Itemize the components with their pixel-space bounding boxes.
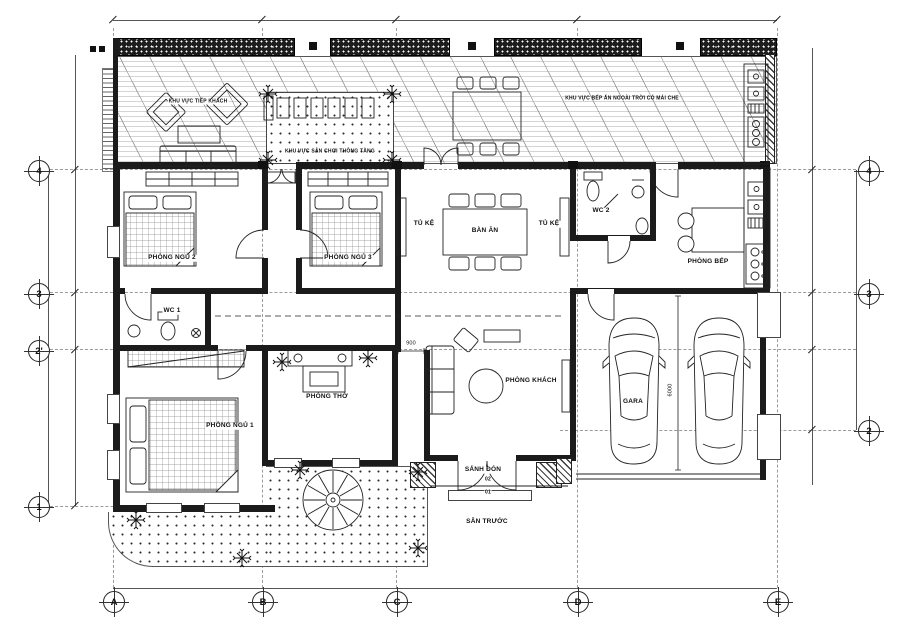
floor-plan: PHÒNG NGỦ 2 PHÒNG NGỦ 3 WC 2 PHÒNG BẾP T… [0, 0, 900, 620]
label-shelf-left: TỦ KỆ [413, 221, 436, 228]
label-outdoor-bbq: KHU VỰC BẾP ĂN NGOÀI TRỜI CÓ MÁI CHE [564, 97, 680, 102]
grid-bubble-right-2: 2 [858, 420, 880, 442]
grid-bubble-right-4: 4 [858, 160, 880, 182]
grid-bubble-col-d: D [567, 591, 589, 613]
grid-bubble-left-2p: 2' [28, 340, 50, 362]
dim-label-6000: 6000 [668, 382, 674, 397]
label-entry-porch: SẢNH ĐÓN [464, 467, 502, 474]
grid-bubble-right-3: 3 [858, 283, 880, 305]
room-label-wc1: WC 1 [162, 308, 181, 315]
step-label-01: 01 [484, 491, 492, 496]
room-label-wc2: WC 2 [591, 208, 610, 215]
room-label-bedroom1: PHÒNG NGỦ 1 [205, 423, 255, 430]
grid-bubble-col-e: E [767, 591, 789, 613]
room-label-kitchen: PHÒNG BẾP [687, 259, 730, 266]
step-label-02: 02 [484, 478, 492, 483]
grid-bubble-col-b: B [252, 591, 274, 613]
room-label-bedroom2: PHÒNG NGỦ 2 [147, 255, 197, 262]
grid-bubble-left-1: 1 [28, 496, 50, 518]
room-label-worship: PHÒNG THỜ [305, 394, 349, 401]
dim-label-900: 900 [405, 341, 417, 347]
label-dining-table: BÀN ĂN [471, 228, 499, 235]
room-label-garage: GARA [622, 399, 644, 406]
grid-bubble-col-c: C [386, 591, 408, 613]
grid-bubble-left-3: 3 [28, 283, 50, 305]
room-label-living: PHÒNG KHÁCH [504, 378, 557, 385]
grid-bubble-left-4: 4 [28, 160, 50, 182]
label-shelf-right: TỦ KỆ [538, 221, 561, 228]
grid-bubble-col-a: A [103, 591, 125, 613]
furniture-linework [0, 0, 900, 620]
label-outdoor-lounge: KHU VỰC TIẾP KHÁCH [168, 100, 229, 105]
label-void-play-area: KHU VỰC SÂN CHƠI THÔNG TẦNG [284, 150, 376, 155]
room-label-bedroom3: PHÒNG NGỦ 3 [323, 255, 373, 262]
label-front-yard: SÂN TRƯỚC [465, 519, 509, 526]
